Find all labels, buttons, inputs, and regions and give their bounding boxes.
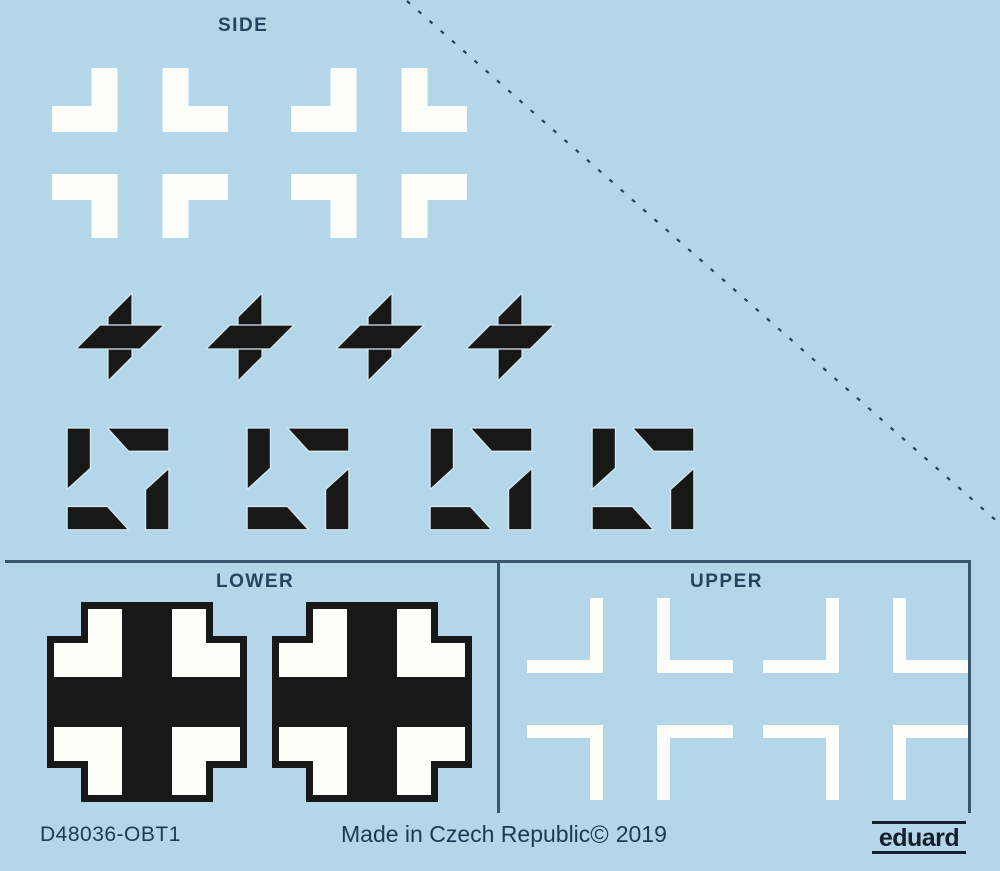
side-cross-decals — [52, 68, 467, 238]
lower-cross-decals — [47, 602, 472, 802]
product-code: D48036-OBT1 — [40, 823, 181, 847]
upper-cross-decals — [527, 598, 969, 800]
tail-marking-center-decals — [76, 293, 554, 381]
section-label-upper: UPPER — [690, 571, 763, 593]
section-label-lower: LOWER — [216, 571, 294, 593]
eduard-logo-text: eduard — [879, 824, 959, 852]
copyright-symbol: © — [590, 821, 608, 849]
decal-artwork — [0, 0, 1000, 871]
made-in-label: Made in Czech Republic — [341, 821, 590, 847]
tail-marking-corner-decals — [67, 428, 694, 530]
eduard-logo: eduard — [872, 821, 966, 854]
section-label-side: SIDE — [218, 15, 268, 37]
made-in-text: Made in Czech Republic©2019 — [341, 821, 667, 850]
year-label: 2019 — [616, 821, 667, 847]
decal-sheet: SIDE LOWER UPPER D48036-OBT1 Made in Cze… — [0, 0, 1000, 871]
